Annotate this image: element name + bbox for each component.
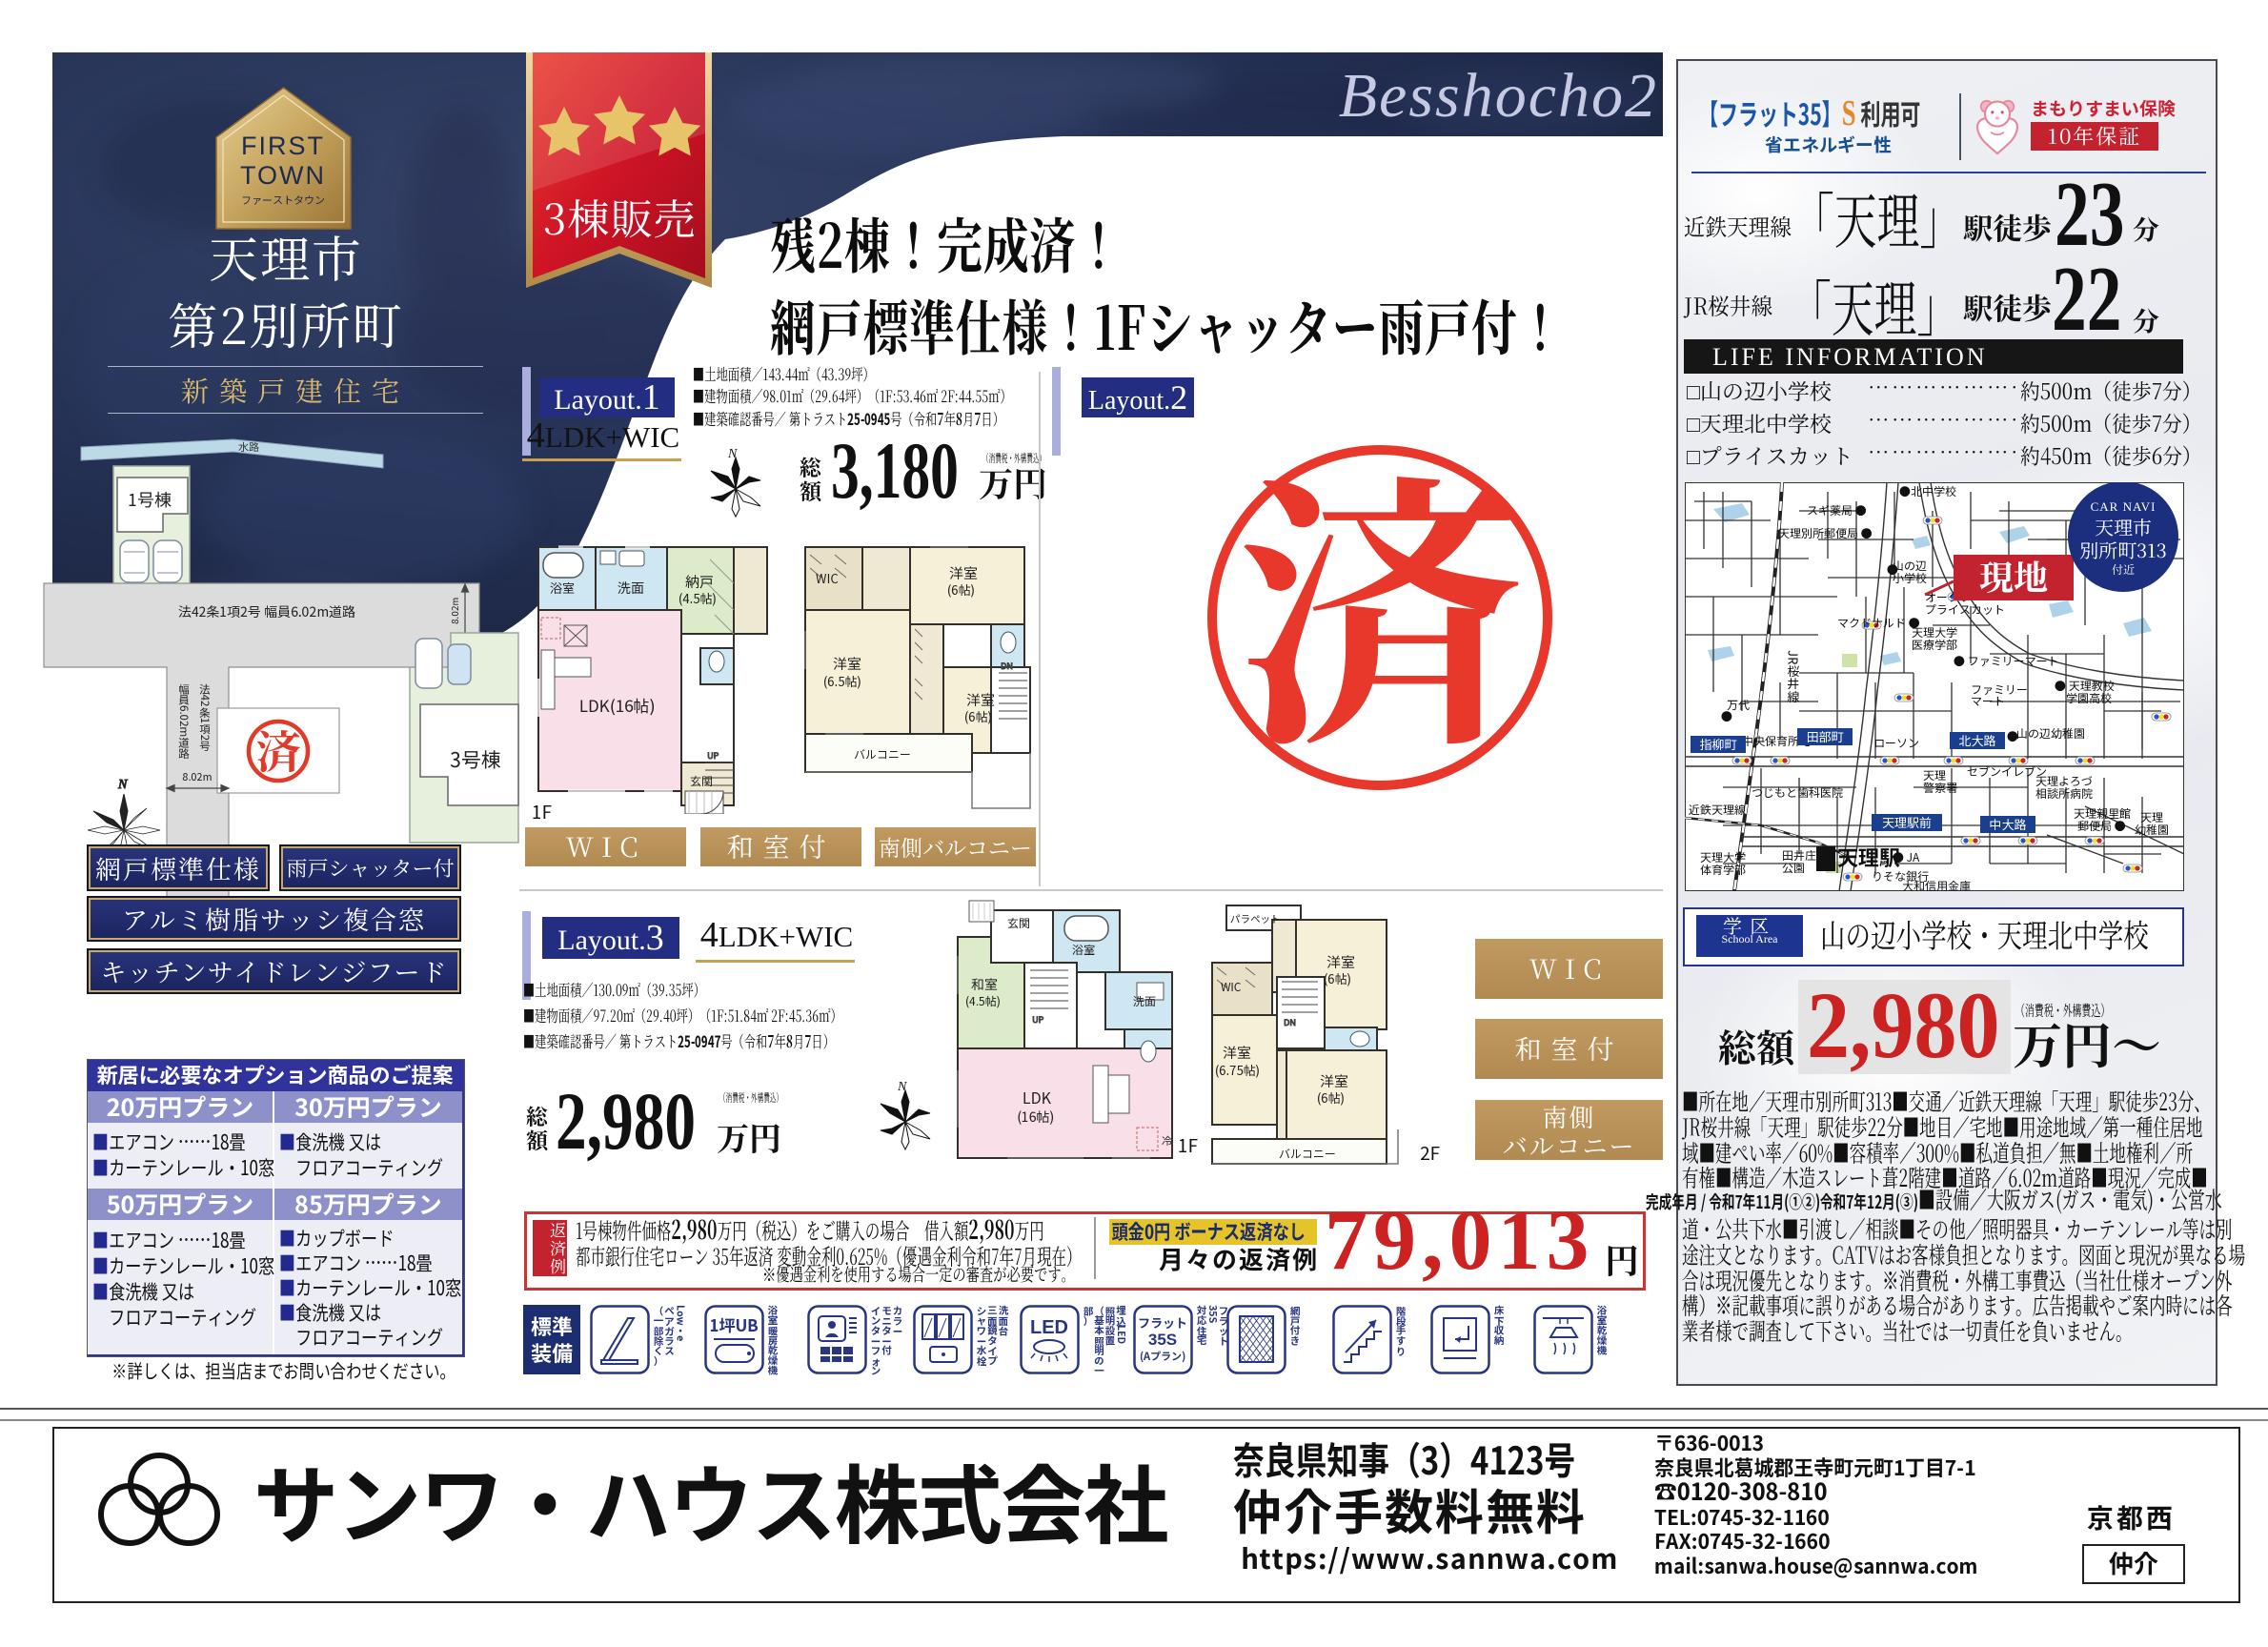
svg-text:つじもと歯科医院: つじもと歯科医院	[1752, 784, 1843, 801]
svg-text:N: N	[117, 778, 128, 792]
svg-text:浴室: 浴室	[550, 579, 575, 597]
svg-text:玄関: 玄関	[1007, 915, 1030, 931]
svg-text:体育学部: 体育学部	[1700, 862, 1747, 878]
svg-text:(6.5帖): (6.5帖)	[823, 672, 861, 690]
svg-text:8.02m: 8.02m	[447, 597, 461, 624]
svg-text:(4.5帖): (4.5帖)	[678, 589, 717, 607]
svg-text:(16帖): (16帖)	[1017, 1108, 1054, 1127]
svg-text:3号棟: 3号棟	[450, 745, 501, 774]
svg-text:WIC: WIC	[1221, 979, 1242, 995]
svg-text:公園: 公園	[1782, 860, 1805, 876]
svg-text:法42条1項2号: 法42条1項2号	[197, 683, 213, 752]
svg-text:●: ●	[1887, 561, 1898, 578]
svg-text:TOWN: TOWN	[240, 161, 326, 190]
svg-text:玄関: 玄関	[690, 773, 713, 789]
svg-text:和室: 和室	[970, 975, 998, 994]
svg-text:済: 済	[256, 718, 301, 782]
svg-text:パラペット: パラペット	[1230, 912, 1281, 926]
svg-text:洋室: 洋室	[1223, 1043, 1251, 1063]
svg-text:幅員6.02m道路: 幅員6.02m道路	[176, 683, 192, 760]
svg-text:マクドナルド ●: マクドナルド ●	[1837, 615, 1920, 631]
svg-text:医療学部: 医療学部	[1912, 637, 1958, 653]
svg-text:LDK: LDK	[1023, 1086, 1052, 1108]
svg-text:天理駅: 天理駅	[1837, 842, 1900, 872]
svg-text:UP: UP	[1032, 1013, 1043, 1026]
svg-text:法42条1項2号 幅員6.02m道路: 法42条1項2号 幅員6.02m道路	[178, 602, 355, 621]
svg-text:近鉄天理線: 近鉄天理線	[1689, 802, 1746, 818]
svg-text:学園高校: 学園高校	[2066, 690, 2112, 706]
svg-text:中大路: 中大路	[1989, 815, 2026, 833]
svg-text:別所町313: 別所町313	[2079, 536, 2167, 563]
svg-text:天理別所郵便局 ●: 天理別所郵便局 ●	[1778, 525, 1873, 541]
svg-text:郵便局 ●: 郵便局 ●	[2077, 818, 2126, 834]
svg-text:洗面: 洗面	[1133, 993, 1156, 1009]
svg-text:(Aプラン): (Aプラン)	[1140, 1349, 1185, 1364]
svg-text:指柳町: 指柳町	[1699, 735, 1736, 753]
svg-text:プライスカット: プライスカット	[1925, 601, 2005, 618]
svg-text:付近: 付近	[2112, 561, 2135, 578]
svg-text:浴室: 浴室	[1072, 942, 1095, 958]
svg-text:現地: 現地	[1979, 552, 2048, 600]
svg-text:ファーストタウン: ファーストタウン	[241, 193, 325, 208]
svg-text:北大路: 北大路	[1958, 731, 1995, 749]
svg-text:大和信用金庫: 大和信用金庫	[1902, 878, 1971, 891]
svg-text:洋室: 洋室	[833, 654, 861, 674]
svg-text:1坪UB: 1坪UB	[709, 1312, 759, 1336]
svg-text:●北中学校: ●北中学校	[1899, 483, 1956, 499]
svg-text:ローソン: ローソン	[1873, 735, 1919, 751]
svg-text:バルコニー: バルコニー	[1279, 1146, 1336, 1162]
svg-text:1号棟: 1号棟	[128, 487, 172, 512]
svg-text:冷: 冷	[1162, 1133, 1172, 1149]
svg-text:(4.5帖): (4.5帖)	[965, 993, 1001, 1009]
svg-text:山の辺幼稚園: 山の辺幼稚園	[2016, 725, 2085, 742]
svg-text:(6帖): (6帖)	[1317, 1088, 1345, 1107]
svg-text:天理駅前: 天理駅前	[1882, 813, 1932, 831]
svg-text:CAR NAVI: CAR NAVI	[2091, 499, 2157, 514]
svg-text:●: ●	[1721, 708, 1732, 724]
svg-text:35S: 35S	[1148, 1331, 1177, 1349]
svg-text:(6帖): (6帖)	[964, 707, 992, 725]
svg-text:8.02m: 8.02m	[182, 769, 213, 784]
svg-text:(6.75帖): (6.75帖)	[1215, 1061, 1260, 1079]
svg-text:スギ薬局 ●: スギ薬局 ●	[1807, 502, 1867, 518]
svg-text:洗面: 洗面	[618, 579, 644, 598]
svg-text:LED: LED	[1030, 1317, 1068, 1338]
svg-text:WIC: WIC	[816, 569, 839, 587]
svg-text:(6帖): (6帖)	[1324, 969, 1351, 987]
svg-text:LDK(16帖): LDK(16帖)	[579, 693, 655, 717]
svg-text:●: ●	[2007, 728, 2018, 744]
svg-text:済: 済	[1237, 437, 1523, 799]
svg-text:バルコニー: バルコニー	[854, 746, 911, 762]
svg-text:田部町: 田部町	[1806, 727, 1843, 745]
svg-text:警察署: 警察署	[1923, 780, 1957, 796]
svg-text:相談所病院: 相談所病院	[2035, 785, 2093, 802]
svg-text:水路: 水路	[237, 439, 259, 455]
svg-text:UP: UP	[707, 749, 719, 762]
svg-text:フラット: フラット	[1138, 1313, 1187, 1332]
svg-text:FIRST: FIRST	[241, 132, 325, 160]
svg-text:(6帖): (6帖)	[947, 580, 975, 599]
svg-text:マート: マート	[1971, 693, 2005, 709]
svg-text:3棟販売: 3棟販売	[543, 186, 697, 247]
svg-text:DN: DN	[1284, 1016, 1296, 1028]
svg-text:JR桜井線: JR桜井線	[1785, 650, 1803, 703]
svg-text:幼稚園: 幼稚園	[2135, 822, 2169, 838]
svg-text:● ファミリーマート: ● ファミリーマート	[1954, 653, 2059, 669]
svg-text:DN: DN	[1001, 660, 1013, 672]
